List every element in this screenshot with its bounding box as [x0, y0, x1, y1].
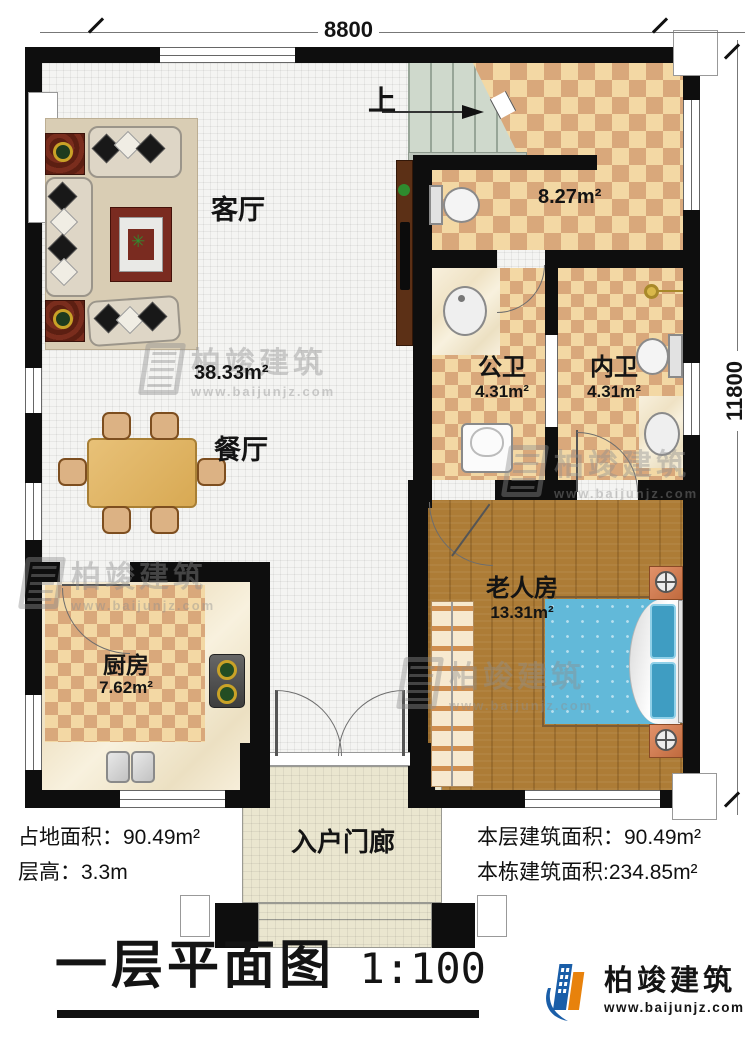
- bath-sink: [443, 286, 487, 336]
- bed-pillow: [650, 662, 676, 719]
- toilet-tank: [429, 185, 443, 225]
- stairs-up-label: 上: [368, 86, 396, 117]
- cabinet-plant-icon: [398, 184, 410, 196]
- stairs-arrow-icon: [462, 105, 484, 119]
- burner-icon: [217, 660, 237, 680]
- watermark-url: www.baijunjz.com: [449, 698, 593, 713]
- floor-plan: ✳: [0, 0, 750, 1041]
- watermark-name: 柏竣建筑: [71, 552, 215, 596]
- brand-logo-icon: [538, 960, 596, 1022]
- page-title: 一层平面图: [55, 937, 335, 995]
- title-underline: [57, 1010, 479, 1018]
- room-label-dining: 餐厅: [214, 436, 268, 466]
- watermark-name: 柏竣建筑: [554, 440, 698, 484]
- toilet-bowl: [443, 187, 480, 223]
- window-left-1: [25, 368, 42, 413]
- window-bath-divider: [545, 335, 558, 427]
- kitchen-sink: [106, 751, 130, 783]
- dim-line-top: [40, 32, 745, 33]
- kitchen-sink: [131, 751, 155, 783]
- title-block: 一层平面图 1:100: [55, 938, 495, 1022]
- stats-left: 占地面积：90.49m² 层高：3.3m: [18, 820, 200, 890]
- window-bottom-kitchen: [120, 790, 225, 808]
- window-top: [160, 47, 295, 63]
- room-label-porch: 入户门廊: [291, 828, 395, 857]
- dining-chair: [102, 412, 131, 440]
- stat-floor-area: 本层建筑面积：90.49m²: [477, 820, 701, 855]
- title-scale: 1:100: [359, 944, 485, 993]
- stat-total-area: 本栋建筑面积:234.85m²: [477, 855, 701, 890]
- dining-chair: [102, 506, 131, 534]
- wall-top: [30, 47, 690, 63]
- dining-chair: [150, 506, 179, 534]
- brand-watermark-icon: [396, 657, 444, 709]
- dim-right-value: 11800: [723, 351, 749, 431]
- dining-table: [87, 438, 197, 508]
- watermark-name: 柏竣建筑: [449, 652, 593, 696]
- brand-watermark-icon: [138, 343, 186, 395]
- room-area-living: 38.33m²: [194, 362, 269, 384]
- towel-ring-icon: [644, 284, 659, 299]
- room-label-elder-bedroom: 老人房 13.31m²: [477, 575, 567, 622]
- dim-box-porch-right: [477, 895, 507, 937]
- dining-chair: [150, 412, 179, 440]
- stat-floor-height: 层高：3.3m: [18, 855, 200, 890]
- dim-top-value: 8800: [318, 18, 379, 42]
- bed-pillow: [650, 604, 676, 659]
- end-table-bottom-medallion: [53, 309, 73, 329]
- burner-icon: [217, 684, 237, 704]
- wall-bath-top-left: [413, 250, 497, 268]
- toilet-tank: [668, 334, 683, 378]
- lamp-icon: [655, 729, 677, 751]
- faucet-icon: [458, 295, 465, 302]
- watermark-url: www.baijunjz.com: [554, 486, 698, 501]
- brand-watermark-icon: [18, 557, 66, 609]
- brand-name: 柏竣建筑: [604, 966, 745, 998]
- washer-drum-icon: [470, 427, 504, 457]
- end-table-top-medallion: [53, 142, 73, 162]
- wall-bath-top-right: [558, 250, 683, 268]
- towel-bar-icon: [658, 290, 683, 292]
- dim-box-porch-left: [180, 895, 210, 937]
- room-area-stair-hall: 8.27m²: [538, 186, 601, 208]
- wall-below-stairs: [413, 155, 597, 170]
- window-left-2: [25, 483, 42, 540]
- room-label-ensuite-bath: 内卫 4.31m²: [574, 354, 654, 401]
- tv-icon: [400, 222, 410, 290]
- plant-icon: ✳: [131, 233, 145, 252]
- watermark: 柏竣建筑 www.baijunjz.com: [22, 552, 215, 613]
- bed-headboard: [678, 600, 683, 723]
- window-right-2: [683, 363, 700, 435]
- brand-watermark-icon: [501, 445, 549, 497]
- window-left-kitchen: [25, 695, 42, 770]
- room-label-living: 客厅: [211, 196, 265, 226]
- window-right-1: [683, 100, 700, 210]
- room-label-kitchen: 厨房 7.62m²: [91, 652, 161, 698]
- stat-site-area: 占地面积：90.49m²: [18, 820, 200, 855]
- watermark-url: www.baijunjz.com: [191, 384, 335, 399]
- stats-right: 本层建筑面积：90.49m² 本栋建筑面积:234.85m²: [477, 820, 701, 890]
- room-label-public-bath: 公卫 4.31m²: [462, 354, 542, 401]
- watermark-url: www.baijunjz.com: [71, 598, 215, 613]
- brand-logo: 柏竣建筑 www.baijunjz.com: [538, 952, 743, 1030]
- dim-box-bottom-right: [672, 773, 717, 820]
- brand-site: www.baijunjz.com: [604, 1001, 745, 1016]
- window-bottom-bedroom: [525, 790, 660, 808]
- dining-chair: [58, 458, 87, 486]
- wall-entry-jamb-left: [240, 743, 270, 793]
- lamp-icon: [655, 571, 677, 593]
- watermark: 柏竣建筑 www.baijunjz.com: [400, 652, 593, 713]
- watermark: 柏竣建筑 www.baijunjz.com: [505, 440, 698, 501]
- dim-box-top-right: [673, 30, 718, 76]
